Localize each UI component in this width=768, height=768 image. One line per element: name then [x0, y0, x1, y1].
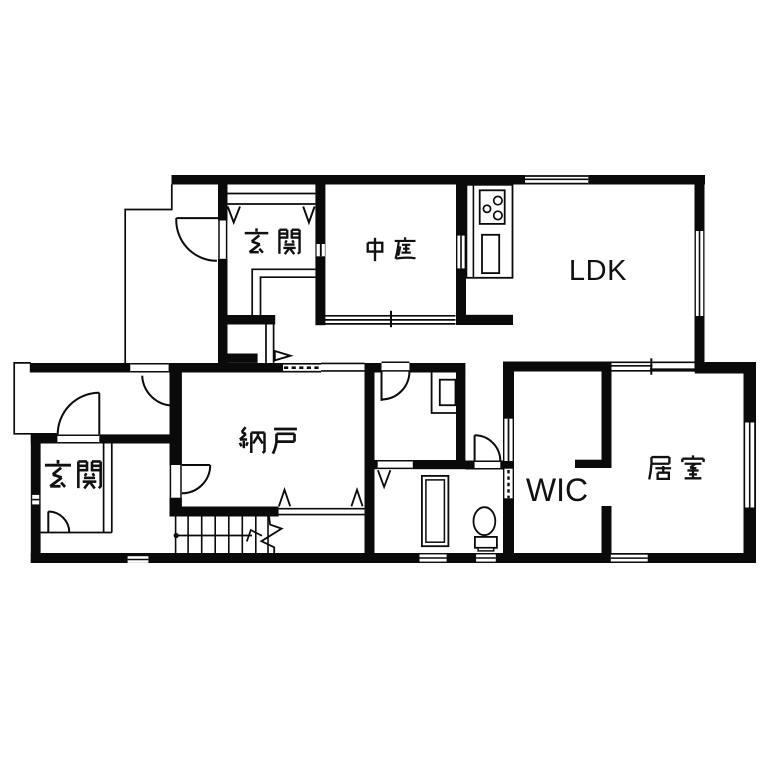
svg-text:LDK: LDK: [569, 255, 627, 287]
svg-text:WIC: WIC: [526, 472, 588, 508]
